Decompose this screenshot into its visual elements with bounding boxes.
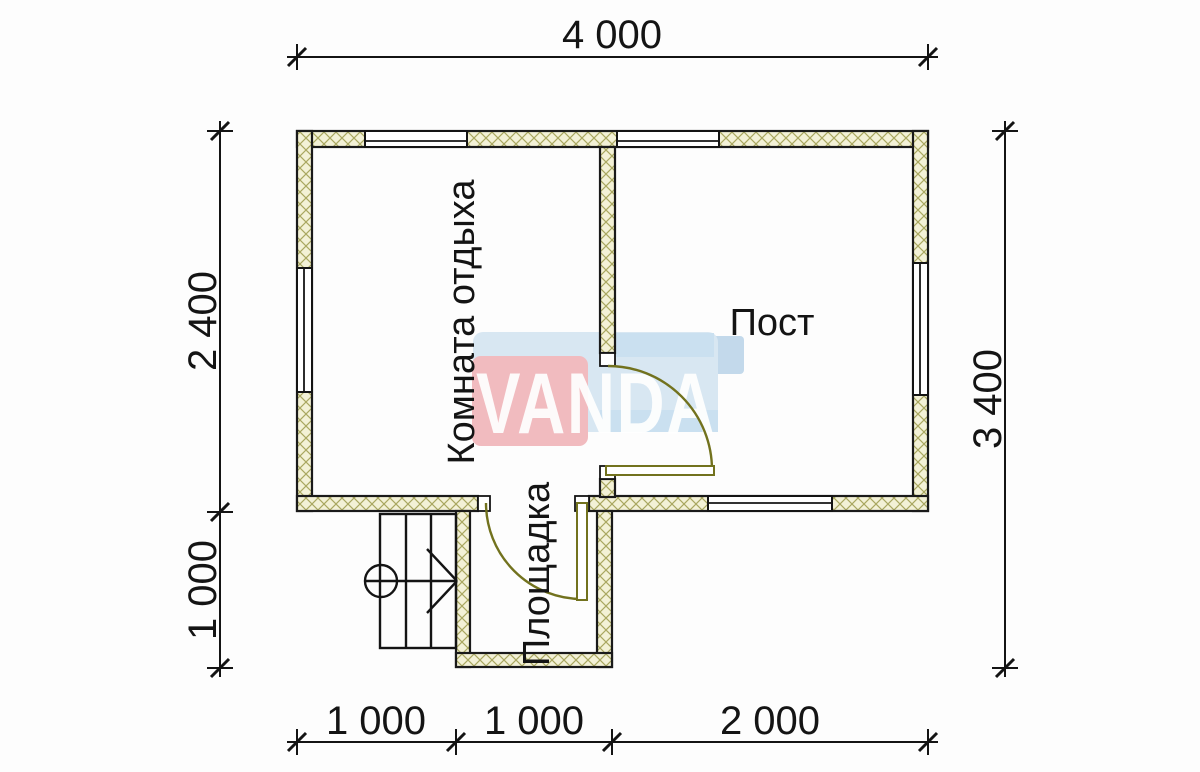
window-top-right <box>617 131 719 147</box>
dim-right-label: 3 400 <box>966 349 1010 449</box>
window-top-left <box>365 131 467 147</box>
room-label-platform: Площадка <box>516 481 558 666</box>
dimension-top: 4 000 <box>287 13 938 70</box>
dimension-right: 3 400 <box>966 121 1018 677</box>
entrance-door-jamb-left <box>478 496 490 511</box>
interior-door-jamb-top <box>600 353 615 366</box>
dimension-bottom: 1 000 1 000 2 000 <box>287 699 938 755</box>
room-label-post: Пост <box>730 302 815 344</box>
dim-bottom-middle-label: 1 000 <box>484 699 584 743</box>
dimension-left: 2 400 1 000 <box>181 121 233 677</box>
dim-top-label: 4 000 <box>562 13 662 57</box>
floor-plan-page: VANDA <box>0 0 1200 772</box>
dim-bottom-right-label: 2 000 <box>720 699 820 743</box>
interior-wall-stub <box>600 479 615 497</box>
watermark-blue-top-strip <box>602 333 714 357</box>
dim-left-lower-label: 1 000 <box>181 540 225 640</box>
room-label-rest-room: Комната отдыха <box>441 179 483 465</box>
interior-wall <box>600 147 615 353</box>
bottom-wall-left <box>297 496 478 511</box>
porch-left-wall <box>456 511 470 667</box>
dim-left-upper-label: 2 400 <box>181 271 225 371</box>
entrance-door-leaf <box>577 503 587 600</box>
stairs <box>364 514 457 648</box>
watermark-text: VANDA <box>476 356 716 452</box>
dim-bottom-left-label: 1 000 <box>326 699 426 743</box>
floor-plan-drawing: VANDA <box>0 0 1200 772</box>
interior-door-leaf <box>606 466 714 475</box>
porch-right-wall <box>597 511 612 667</box>
